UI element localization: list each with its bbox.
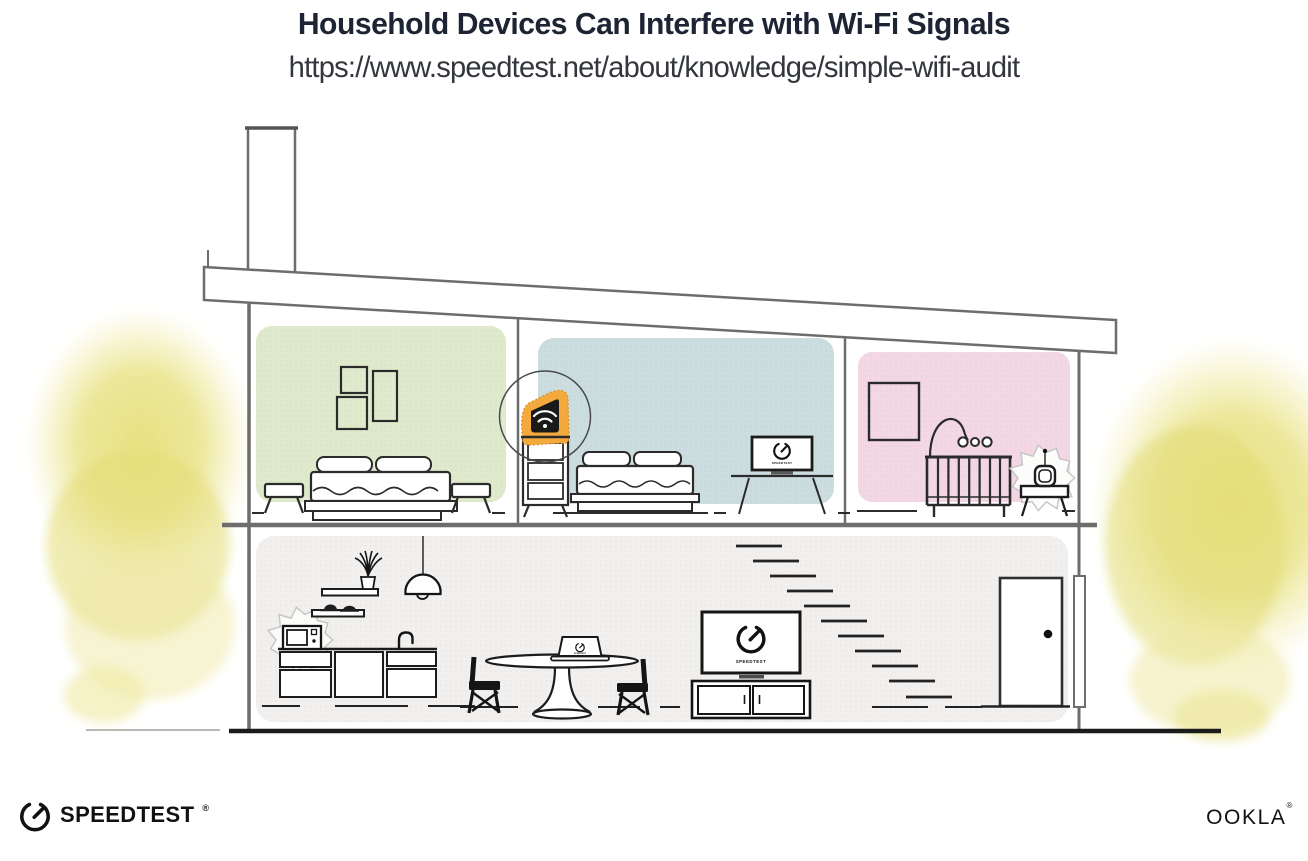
ookla-registered-mark: ® bbox=[1287, 801, 1295, 810]
speedtest-logo: SPEEDTEST® bbox=[18, 798, 209, 832]
living-room-tv: SPEEDTEST bbox=[702, 612, 800, 679]
bed-blue bbox=[571, 452, 699, 511]
cabinets bbox=[280, 652, 436, 697]
infographic-page: Household Devices Can Interfere with Wi-… bbox=[0, 0, 1308, 861]
chimney bbox=[245, 128, 298, 278]
bush-right bbox=[1094, 340, 1308, 742]
speedtest-wordmark: SPEEDTEST bbox=[60, 802, 194, 828]
bush-left bbox=[28, 310, 252, 723]
svg-text:SPEEDTEST: SPEEDTEST bbox=[772, 461, 793, 465]
microwave bbox=[283, 626, 321, 649]
media-console bbox=[692, 681, 810, 718]
ookla-wordmark: OOKLA bbox=[1206, 806, 1286, 829]
speedtest-registered-mark: ® bbox=[202, 803, 209, 813]
ookla-logo: OOKLA® bbox=[1206, 806, 1294, 830]
floor-dashes bbox=[262, 706, 982, 707]
router-shelf bbox=[523, 437, 568, 517]
speedtest-gauge-icon bbox=[18, 798, 52, 832]
downspout bbox=[1074, 576, 1085, 707]
svg-text:SPEEDTEST: SPEEDTEST bbox=[574, 653, 587, 655]
door-knob bbox=[1044, 630, 1053, 639]
house-illustration: SPEEDTEST bbox=[0, 0, 1308, 861]
svg-text:SPEEDTEST: SPEEDTEST bbox=[736, 659, 767, 664]
bedroom-tv: SPEEDTEST bbox=[752, 437, 812, 475]
